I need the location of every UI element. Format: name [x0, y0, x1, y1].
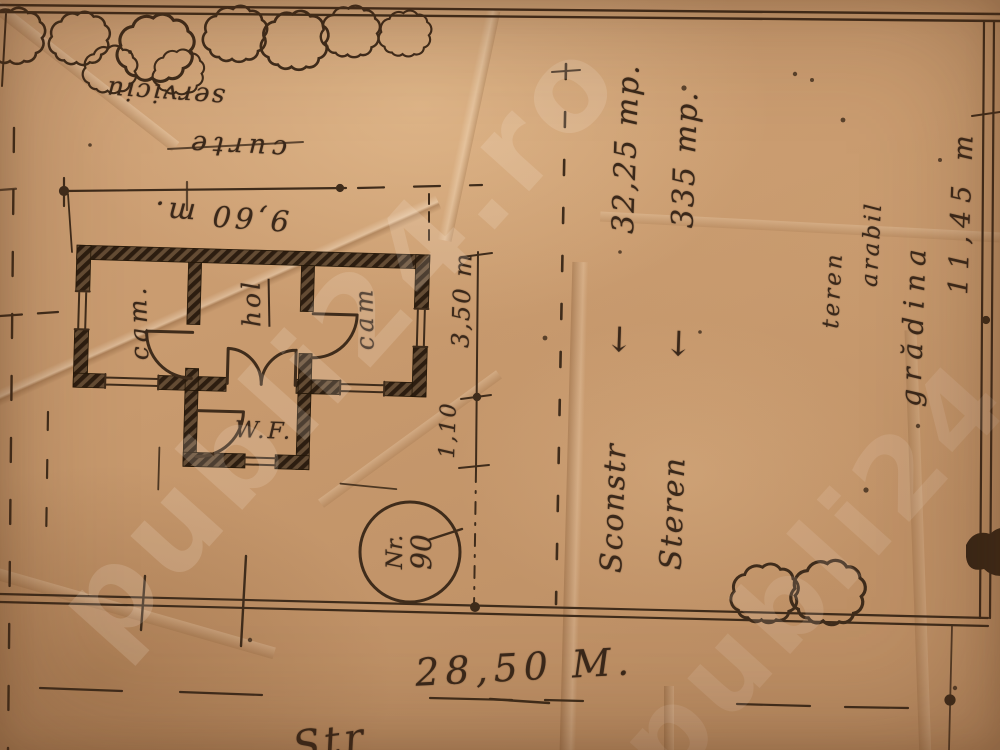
area-land-label: Steren: [653, 456, 692, 571]
arrow-icon: ←: [599, 322, 640, 354]
room-label-annex: W.F.: [224, 415, 305, 448]
bush-icon: [379, 11, 432, 57]
zone-label-teren: teren: [815, 234, 851, 345]
left-boundary-dashed: [8, 128, 48, 750]
bush-icon: [731, 564, 798, 623]
plan-linework: [0, 0, 1000, 750]
stamp-prefix: Nr.: [384, 535, 407, 569]
bush-icon: [49, 12, 110, 65]
room-label-cam-left: cam.: [120, 276, 155, 367]
area-land-value: 335 mp.: [665, 90, 705, 229]
zone-label-gradina: grădina: [893, 223, 934, 424]
area-built-label: Sconstr: [594, 442, 634, 574]
scanned-site-plan-photo: serviciu curte 9,60 m. cam. hol cam W.F.…: [0, 0, 1000, 750]
bush-icon: [790, 558, 867, 626]
arrow-icon: ←: [658, 326, 699, 358]
dimension-label-3-50: 3,50 m: [443, 239, 481, 360]
stamp-text: Nr. 90: [378, 517, 442, 587]
room-label-hol: hol: [235, 268, 270, 339]
label-curte: curte: [170, 127, 302, 168]
bush-icon: [321, 6, 380, 58]
room-label-cam-right: cam: [347, 278, 380, 359]
area-built-value: 32,25 mp.: [605, 63, 646, 235]
dimension-label-1-10: 1,10: [432, 394, 464, 465]
bush-icon: [261, 11, 328, 70]
bush-icon: [966, 528, 1000, 576]
hedge-bottom-right: [731, 528, 1000, 626]
lot-divider-dashed: [552, 64, 580, 604]
stamp-number: 90: [407, 534, 436, 570]
